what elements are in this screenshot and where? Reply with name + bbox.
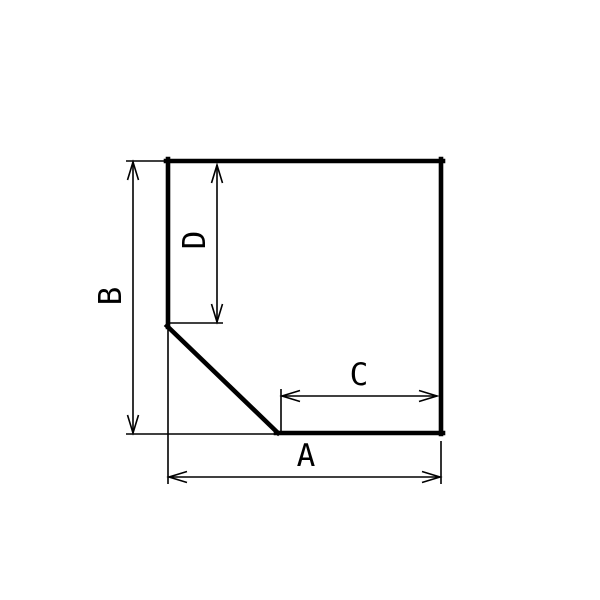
dim-d-label: D bbox=[177, 231, 213, 250]
shape-outline bbox=[166, 159, 443, 434]
dimension-lines bbox=[126, 161, 441, 484]
drawing-canvas: B D C A bbox=[0, 0, 600, 600]
dim-b-label: B bbox=[93, 287, 129, 306]
dim-c-label: C bbox=[350, 357, 369, 393]
dim-a-label: A bbox=[297, 438, 316, 474]
shape-chamfer-edge bbox=[167, 326, 278, 433]
dimension-labels: B D C A bbox=[93, 231, 368, 474]
technical-drawing: B D C A bbox=[0, 0, 600, 600]
